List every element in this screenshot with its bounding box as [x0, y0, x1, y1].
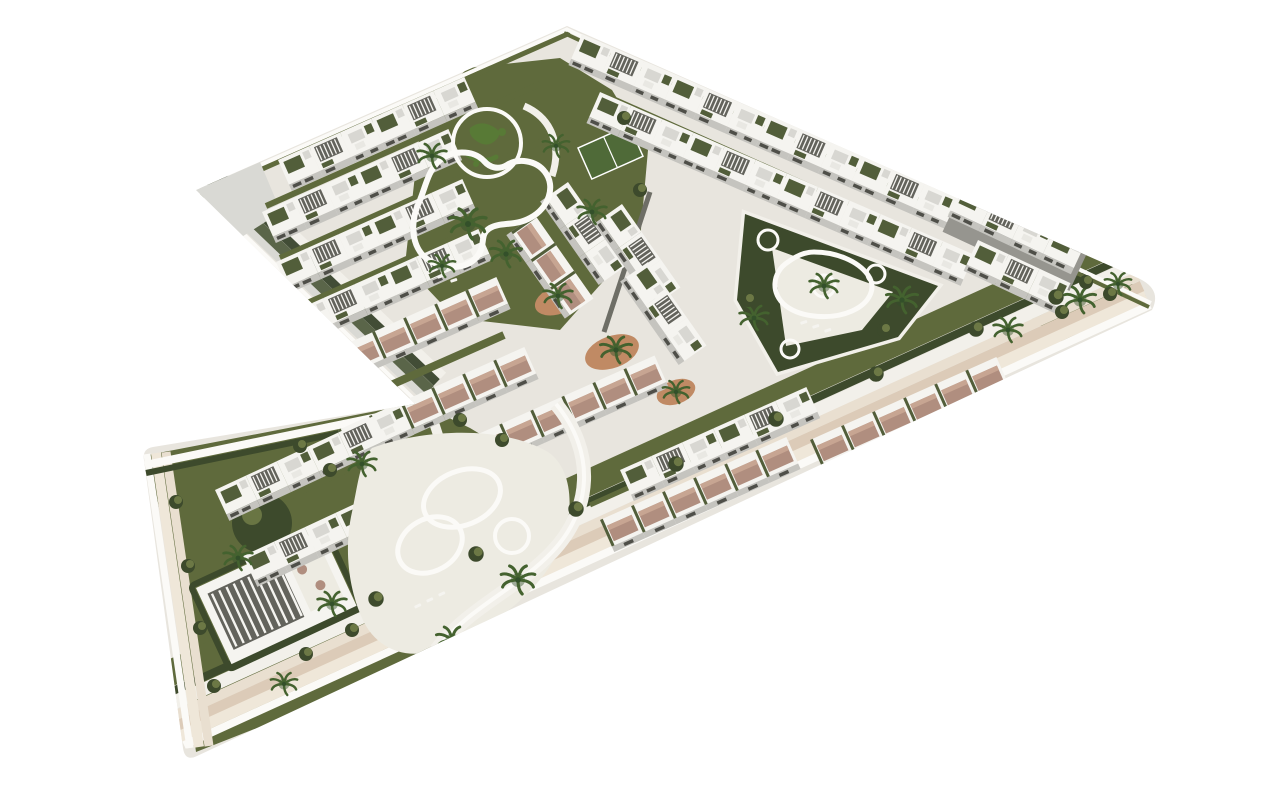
shrub-icon — [568, 501, 583, 516]
shrub-icon — [181, 559, 195, 573]
site-plan-render: Aerial 3D architectural render of a whit… — [0, 0, 1280, 800]
shrub-icon — [293, 439, 307, 453]
shrub-icon — [1079, 275, 1093, 289]
shrub-icon — [617, 111, 631, 125]
shrub-icon — [299, 647, 313, 661]
shrub-icon — [1055, 305, 1069, 319]
shrub-icon — [768, 411, 783, 426]
shrub-icon — [368, 591, 383, 606]
shrub-icon — [1048, 289, 1063, 304]
shrub-icon — [741, 293, 755, 307]
shrub-icon — [495, 433, 509, 447]
shrub-icon — [169, 495, 183, 509]
shrub-icon — [468, 546, 483, 561]
render-canvas: Aerial 3D architectural render of a whit… — [0, 0, 1280, 800]
shrub-icon — [345, 623, 359, 637]
shrub-icon — [868, 366, 883, 381]
shrub-icon — [323, 463, 337, 477]
shrub-icon — [207, 679, 221, 693]
shrub-icon — [633, 183, 647, 197]
shrub-icon — [668, 456, 683, 471]
shrub-icon — [877, 323, 891, 337]
shrub-icon — [193, 621, 207, 635]
shrub-icon — [1103, 287, 1117, 301]
shrub-icon — [968, 321, 983, 336]
shrub-icon — [453, 413, 467, 427]
